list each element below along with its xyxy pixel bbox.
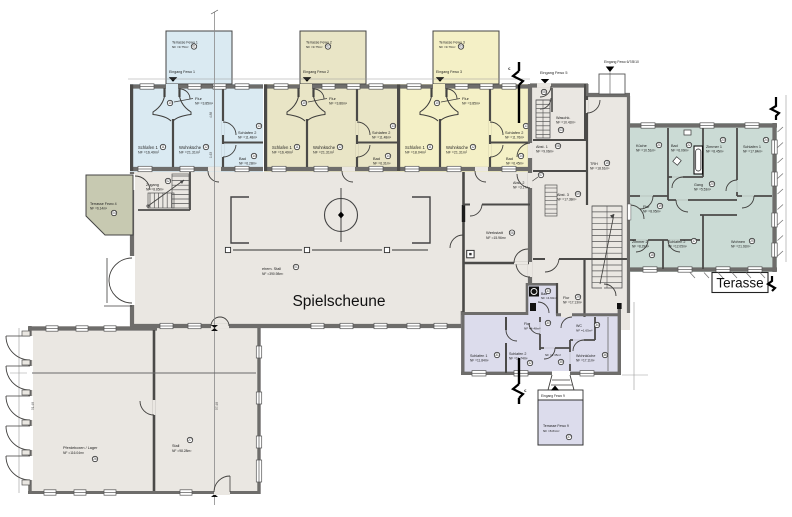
svg-text:NF =8.95m²: NF =8.95m² — [643, 210, 661, 214]
svg-text:NF =21.92m²: NF =21.92m² — [731, 245, 751, 249]
svg-text:NF =2.35m²: NF =2.35m² — [545, 353, 561, 357]
svg-text:Schlafen 2: Schlafen 2 — [372, 130, 390, 135]
svg-text:NF =3.86m²: NF =3.86m² — [329, 102, 348, 106]
svg-text:Werkstatt: Werkstatt — [486, 230, 504, 235]
svg-text:Flur: Flur — [643, 205, 650, 209]
svg-text:14: 14 — [386, 154, 390, 158]
svg-text:04: 04 — [112, 211, 116, 215]
svg-text:51.48: 51.48 — [31, 402, 35, 410]
svg-text:Eingang Fewo 5: Eingang Fewo 5 — [540, 71, 567, 75]
svg-text:20: 20 — [710, 182, 714, 186]
svg-text:Waschk.: Waschk. — [556, 116, 570, 120]
svg-text:NF =21.31m²: NF =21.31m² — [446, 151, 468, 155]
svg-text:NF =18.04m²: NF =18.04m² — [405, 151, 427, 155]
svg-text:Schlafen 2: Schlafen 2 — [238, 130, 256, 135]
svg-text:Schlafen 1: Schlafen 1 — [138, 145, 158, 150]
svg-text:ehem. Stall: ehem. Stall — [262, 267, 281, 271]
svg-text:Abst. 3: Abst. 3 — [557, 193, 569, 197]
svg-text:NF =9.75m²: NF =9.75m² — [172, 45, 188, 49]
svg-text:57.48: 57.48 — [215, 402, 219, 410]
svg-text:Terrasse Fewo 4: Terrasse Fewo 4 — [90, 202, 117, 206]
svg-text:Abst. 1: Abst. 1 — [536, 145, 548, 149]
svg-text:NF =16.49m²: NF =16.49m² — [138, 151, 160, 155]
svg-text:Wohnküche: Wohnküche — [446, 145, 469, 150]
svg-text:Zimmer 2: Zimmer 2 — [632, 240, 648, 244]
svg-text:Flur: Flur — [524, 322, 531, 326]
svg-text:NF =9.76m²: NF =9.76m² — [439, 45, 455, 49]
svg-text:34: 34 — [595, 323, 599, 327]
svg-text:Zimmer 1: Zimmer 1 — [706, 145, 722, 149]
svg-text:NF =4.60m²: NF =4.60m² — [541, 296, 557, 300]
svg-text:Wohnküche: Wohnküche — [576, 354, 595, 358]
svg-text:31: 31 — [495, 353, 499, 357]
svg-text:NF =17.84m²: NF =17.84m² — [743, 150, 763, 154]
svg-text:Eingang Fewo 6/7/8/10: Eingang Fewo 6/7/8/10 — [604, 60, 639, 64]
svg-text:13: 13 — [257, 124, 261, 128]
svg-text:17: 17 — [692, 239, 696, 243]
svg-text:Schlafen 2: Schlafen 2 — [505, 130, 523, 135]
svg-text:32: 32 — [528, 361, 532, 365]
svg-text:10: 10 — [168, 101, 172, 105]
svg-text:23: 23 — [721, 138, 725, 142]
svg-text:Schlafen 1: Schlafen 1 — [470, 354, 487, 358]
svg-text:NF =5.53m²: NF =5.53m² — [694, 187, 711, 191]
svg-text:Eingang Fewo 3: Eingang Fewo 3 — [436, 70, 462, 74]
svg-text:03: 03 — [559, 128, 563, 132]
svg-text:27: 27 — [188, 438, 192, 442]
svg-text:29: 29 — [576, 295, 580, 299]
svg-text:NF =11.84m²: NF =11.84m² — [470, 359, 488, 363]
svg-text:Flur: Flur — [329, 96, 337, 101]
svg-text:Wohnen: Wohnen — [731, 240, 745, 244]
svg-text:Eingang Fewo 2: Eingang Fewo 2 — [303, 70, 329, 74]
svg-text:10: 10 — [435, 101, 439, 105]
svg-text:Schlafen 2: Schlafen 2 — [668, 240, 685, 244]
svg-text:NF =11.48m²: NF =11.48m² — [372, 136, 392, 140]
svg-text:NF =116.04m²: NF =116.04m² — [63, 451, 85, 455]
svg-text:Eingang Fewo 1: Eingang Fewo 1 — [169, 70, 195, 74]
svg-text:10: 10 — [302, 101, 306, 105]
svg-text:01: 01 — [192, 45, 196, 49]
svg-text:NF =6.14m²: NF =6.14m² — [90, 207, 107, 211]
svg-text:11: 11 — [428, 145, 432, 149]
svg-text:12: 12 — [338, 145, 342, 149]
svg-text:Bad: Bad — [671, 144, 678, 148]
svg-text:02: 02 — [326, 45, 330, 49]
svg-text:Schlafen 1: Schlafen 1 — [405, 145, 425, 150]
svg-text:Bad: Bad — [506, 156, 513, 161]
svg-text:Schlafen 1: Schlafen 1 — [743, 145, 761, 149]
svg-text:19: 19 — [658, 204, 662, 208]
svg-text:NF =21.31m²: NF =21.31m² — [179, 151, 201, 155]
svg-text:Schlafen 1: Schlafen 1 — [272, 145, 292, 150]
svg-text:18: 18 — [650, 253, 654, 257]
svg-text:02: 02 — [166, 179, 170, 183]
svg-text:25: 25 — [750, 239, 754, 243]
svg-text:24: 24 — [764, 138, 768, 142]
svg-text:Stall: Stall — [172, 444, 180, 448]
svg-text:TRH: TRH — [590, 162, 598, 166]
svg-text:NF =10.51m²: NF =10.51m² — [636, 149, 656, 153]
svg-text:30: 30 — [546, 321, 550, 325]
svg-text:NF =11.76m²: NF =11.76m² — [505, 136, 525, 140]
svg-text:Terasse: Terasse — [716, 276, 763, 291]
svg-text:13: 13 — [524, 124, 528, 128]
svg-text:36: 36 — [603, 353, 607, 357]
svg-text:13: 13 — [391, 124, 395, 128]
svg-text:01: 01 — [294, 265, 298, 269]
svg-text:NF =15.96m²: NF =15.96m² — [486, 236, 507, 240]
svg-text:NF =3.85m²: NF =3.85m² — [195, 102, 214, 106]
svg-text:Eingang Fewo 9: Eingang Fewo 9 — [541, 394, 565, 398]
svg-text:Spielscheune: Spielscheune — [292, 293, 385, 310]
svg-text:26: 26 — [93, 457, 97, 461]
svg-text:11: 11 — [161, 145, 165, 149]
svg-text:Küche: Küche — [636, 144, 647, 148]
svg-text:03: 03 — [459, 45, 463, 49]
svg-text:08: 08 — [556, 144, 560, 148]
svg-text:21: 21 — [657, 143, 661, 147]
svg-text:NF =6.45m²: NF =6.45m² — [506, 162, 524, 166]
svg-text:NF =17.11m²: NF =17.11m² — [576, 359, 594, 363]
svg-text:NF =1.65m²: NF =1.65m² — [576, 328, 592, 332]
svg-text:Schlafen 2: Schlafen 2 — [509, 352, 526, 356]
svg-text:Terrasse Fewo 9: Terrasse Fewo 9 — [543, 424, 569, 428]
svg-text:NF =18.61m²: NF =18.61m² — [590, 167, 610, 171]
svg-text:Flur: Flur — [195, 96, 203, 101]
svg-text:NF =8.29m²: NF =8.29m² — [632, 244, 649, 248]
svg-text:Pferdeboxen / Lager: Pferdeboxen / Lager — [63, 446, 98, 450]
svg-text:WC: WC — [576, 324, 582, 328]
svg-text:NF =16.49m²: NF =16.49m² — [272, 151, 294, 155]
svg-text:15: 15 — [605, 161, 609, 165]
svg-text:37: 37 — [567, 435, 571, 439]
svg-text:NF =11.48m²: NF =11.48m² — [238, 136, 258, 140]
svg-text:Flur: Flur — [462, 96, 470, 101]
svg-text:06: 06 — [510, 231, 514, 235]
svg-text:35: 35 — [559, 360, 563, 364]
svg-text:NF =6.28m²: NF =6.28m² — [239, 162, 257, 166]
svg-text:05: 05 — [542, 90, 546, 94]
svg-text:NF =390.98m²: NF =390.98m² — [262, 272, 284, 276]
svg-text:12: 12 — [471, 145, 475, 149]
svg-text:4.88: 4.88 — [209, 112, 213, 118]
svg-text:NF =4.48m²: NF =4.48m² — [524, 326, 540, 330]
svg-text:NF =9.06m²: NF =9.06m² — [536, 150, 554, 154]
svg-text:Gang: Gang — [694, 183, 703, 187]
svg-text:NF =9.75m²: NF =9.75m² — [306, 45, 322, 49]
svg-text:NF =10.42m²: NF =10.42m² — [556, 121, 576, 125]
svg-text:NF =98.28m²: NF =98.28m² — [172, 449, 192, 453]
svg-text:NF =17.13m²: NF =17.13m² — [563, 300, 582, 304]
svg-text:Wohnküche: Wohnküche — [179, 145, 202, 150]
svg-text:14: 14 — [519, 154, 523, 158]
svg-text:NF =3.85m²: NF =3.85m² — [462, 102, 481, 106]
svg-text:11: 11 — [295, 145, 299, 149]
svg-text:NF =8.45m²: NF =8.45m² — [706, 150, 724, 154]
svg-text:NF =6.31m²: NF =6.31m² — [373, 162, 391, 166]
svg-text:07: 07 — [539, 173, 543, 177]
svg-text:NF =6.09m²: NF =6.09m² — [671, 149, 689, 153]
svg-text:NF =12.05m²: NF =12.05m² — [668, 244, 687, 248]
svg-text:1.63: 1.63 — [209, 152, 213, 158]
svg-text:Bad: Bad — [239, 156, 246, 161]
svg-text:14: 14 — [252, 154, 256, 158]
svg-text:12: 12 — [204, 145, 208, 149]
svg-text:33: 33 — [546, 289, 550, 293]
svg-text:Bad: Bad — [373, 156, 380, 161]
svg-text:22: 22 — [687, 143, 691, 147]
svg-text:NF =8.81m²: NF =8.81m² — [543, 429, 559, 433]
svg-text:NF =17.38m²: NF =17.38m² — [557, 198, 577, 202]
svg-text:NF =21.31m²: NF =21.31m² — [313, 151, 335, 155]
svg-text:09: 09 — [576, 192, 580, 196]
svg-text:NF =8.85m²: NF =8.85m² — [146, 188, 164, 192]
svg-text:Wohnküche: Wohnküche — [313, 145, 336, 150]
svg-text:Flur: Flur — [563, 296, 570, 300]
